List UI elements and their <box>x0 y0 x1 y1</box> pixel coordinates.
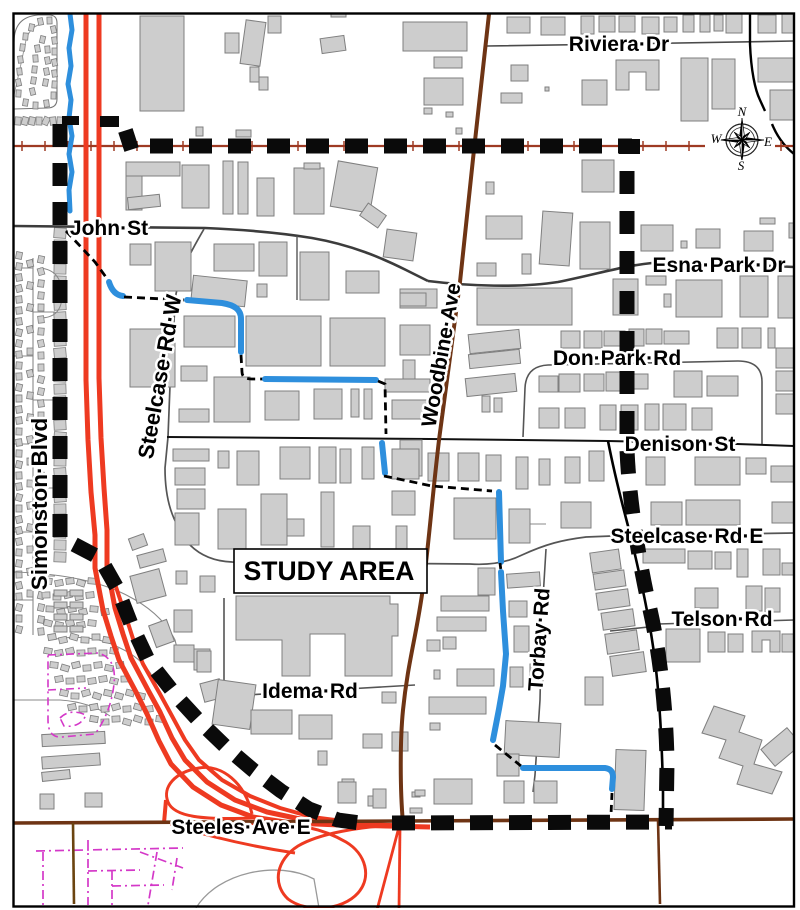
svg-text:Esna·Park·Dr: Esna·Park·Dr <box>652 254 785 277</box>
svg-text:Steeles·Ave·E: Steeles·Ave·E <box>171 816 310 839</box>
svg-text:Denison·St: Denison·St <box>625 433 736 456</box>
svg-text:E: E <box>763 134 772 149</box>
svg-text:Telson·Rd: Telson·Rd <box>671 608 772 631</box>
svg-text:Don·Park·Rd: Don·Park·Rd <box>553 347 681 370</box>
svg-text:Riviera·Dr: Riviera·Dr <box>569 33 669 56</box>
svg-text:N: N <box>737 104 748 119</box>
svg-text:John·St: John·St <box>70 217 148 240</box>
svg-text:Simonston·Blvd: Simonston·Blvd <box>27 418 52 591</box>
svg-text:W: W <box>711 131 723 146</box>
svg-text:S: S <box>738 158 745 173</box>
svg-text:Idema·Rd: Idema·Rd <box>262 680 358 703</box>
svg-text:Steelcase·Rd·E: Steelcase·Rd·E <box>611 525 764 548</box>
svg-text:STUDY AREA: STUDY AREA <box>244 556 415 586</box>
